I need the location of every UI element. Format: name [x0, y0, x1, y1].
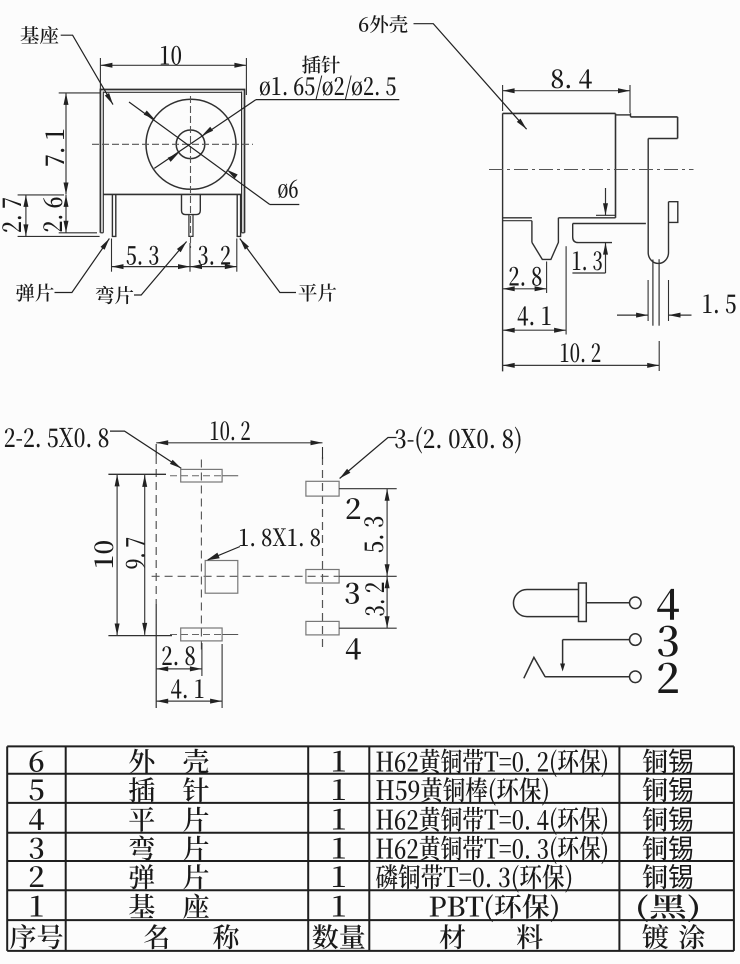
svg-text:基座: 基座	[20, 21, 59, 49]
svg-text:4: 4	[345, 627, 361, 668]
svg-text:3. 2: 3. 2	[198, 236, 232, 273]
svg-text:称: 称	[213, 916, 240, 955]
svg-text:1. 5: 1. 5	[702, 284, 737, 321]
svg-text:弯片: 弯片	[95, 281, 134, 309]
svg-text:料: 料	[516, 916, 543, 955]
svg-text:4. 1: 4. 1	[517, 296, 552, 333]
svg-text:2: 2	[345, 487, 361, 528]
svg-text:3: 3	[344, 572, 360, 613]
svg-text:9. 7: 9. 7	[116, 537, 153, 570]
svg-text:6外壳: 6外壳	[358, 10, 408, 38]
svg-text:2. 8: 2. 8	[161, 636, 196, 673]
svg-text:2-2. 5X0. 8: 2-2. 5X0. 8	[4, 418, 110, 455]
svg-text:平片: 平片	[298, 278, 337, 306]
svg-text:7. 1: 7. 1	[35, 128, 72, 167]
svg-text:涂: 涂	[678, 916, 705, 955]
svg-text:3. 2: 3. 2	[355, 582, 392, 617]
svg-text:1. 3: 1. 3	[571, 241, 602, 278]
svg-text:2. 7: 2. 7	[0, 197, 29, 233]
svg-text:材: 材	[439, 916, 466, 955]
svg-text:2. 6: 2. 6	[33, 197, 70, 233]
svg-text:名: 名	[143, 916, 170, 955]
svg-text:座: 座	[183, 886, 210, 925]
svg-text:2. 8: 2. 8	[508, 257, 542, 294]
svg-text:3-(2. 0X0. 8): 3-(2. 0X0. 8)	[394, 419, 522, 456]
svg-text:镀: 镀	[642, 916, 669, 955]
svg-text:10. 2: 10. 2	[559, 333, 601, 370]
svg-text:数量: 数量	[312, 916, 366, 955]
svg-text:2: 2	[656, 646, 680, 706]
svg-text:10. 2: 10. 2	[209, 411, 250, 448]
svg-text:弹片: 弹片	[15, 278, 54, 306]
svg-text:序号: 序号	[10, 916, 64, 955]
svg-text:4. 1: 4. 1	[170, 669, 205, 706]
svg-text:1. 8X1. 8: 1. 8X1. 8	[238, 518, 321, 553]
svg-text:ø1. 65/ø2/ø2. 5: ø1. 65/ø2/ø2. 5	[259, 67, 396, 103]
svg-text:8. 4: 8. 4	[550, 59, 592, 96]
svg-text:ø6: ø6	[278, 169, 299, 205]
svg-text:10: 10	[159, 36, 182, 73]
svg-text:5. 3: 5. 3	[126, 236, 160, 273]
